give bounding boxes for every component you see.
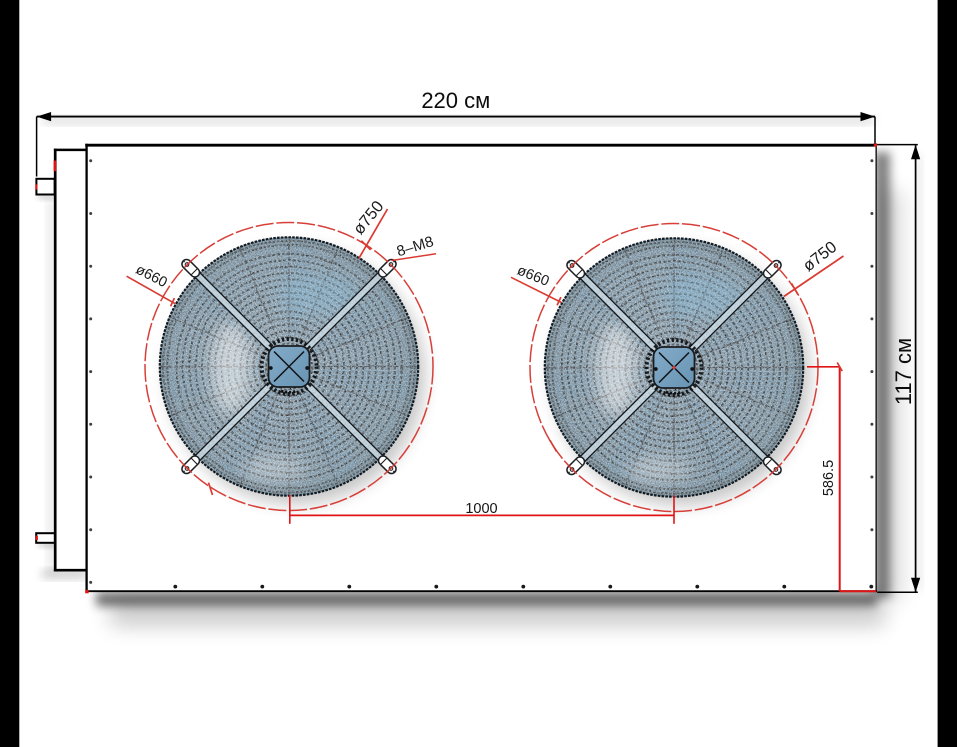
svg-text:220 см: 220 см: [421, 88, 490, 113]
svg-text:586.5: 586.5: [821, 460, 837, 496]
svg-text:1000: 1000: [465, 501, 497, 517]
svg-text:117 см: 117 см: [891, 338, 916, 405]
